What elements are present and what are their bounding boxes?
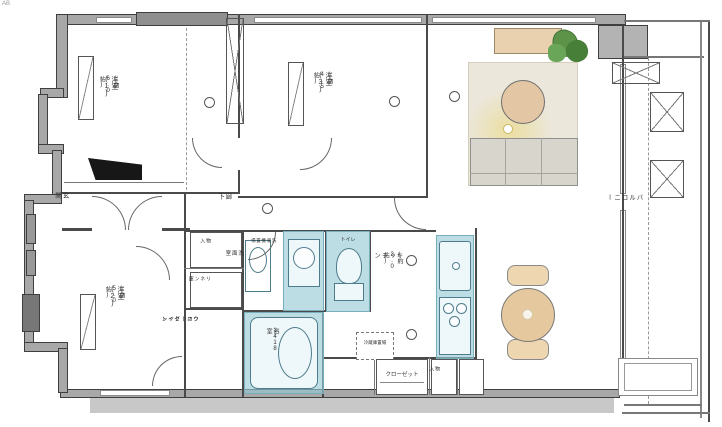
ac-unit-box-1: [650, 92, 684, 132]
wall-left-e: [58, 348, 68, 393]
balcony-bottom-line: [624, 404, 702, 406]
closet-bedroom1: [78, 56, 94, 120]
closet-between-bedrooms: [226, 18, 244, 124]
door-arc-entrance-left: [92, 196, 126, 230]
lamp-icon-ld: [449, 91, 460, 102]
burner-2: [456, 303, 467, 314]
closet-bedroom3: [288, 62, 304, 126]
door-arc-bedroom2: [136, 246, 170, 280]
corner-note: AB: [2, 1, 10, 7]
balcony-rail-2: [708, 22, 710, 422]
balcony-rail-1: [700, 22, 702, 418]
window-top-3: [432, 17, 596, 23]
wall-band-v1: [374, 357, 375, 395]
dining-table-center: [522, 309, 533, 320]
wall-bed1-bed3-lower: [238, 170, 240, 194]
sofa-seam-3: [470, 173, 578, 174]
burner-1: [443, 303, 454, 314]
bathtub-inner: [278, 327, 312, 379]
wall-bed1-bottom: [62, 192, 240, 194]
door-arc-wic: [152, 356, 182, 386]
balcony-rail-bottom: [622, 412, 710, 414]
floor-plan: AB: [0, 0, 722, 427]
wall-bed2-right: [184, 192, 186, 397]
faucet-icon: [452, 262, 460, 270]
balcony-top-line: [624, 56, 704, 58]
meter-box-3: [22, 294, 40, 332]
closet-hanger-pipe: [380, 382, 424, 383]
wall-band-v2: [429, 357, 430, 395]
wall-band-v3: [457, 357, 458, 395]
entrance-marker-triangle: [88, 158, 142, 180]
window-bedroom2-bottom: [100, 390, 170, 396]
entrance-step-line: [64, 182, 184, 183]
meter-box-2: [26, 250, 36, 276]
floor-lamp-dot: [503, 124, 513, 134]
wall-entrance-left: [62, 228, 92, 231]
window-top-1: [96, 17, 132, 23]
wall-wic-top: [184, 308, 244, 310]
balcony-rail-top: [624, 20, 710, 22]
bed1-beam-dashed: [186, 28, 187, 190]
lamp-icon-hall: [262, 203, 273, 214]
lamp-icon-kitchen-2: [406, 329, 417, 340]
wall-entrance-right: [162, 228, 190, 231]
exterior-band-bottom: [90, 398, 614, 413]
door-arc-living: [394, 198, 426, 230]
balcony-hatch-inner: [624, 363, 692, 391]
wall-bed3-ld: [426, 14, 428, 198]
closet-label: クローゼット: [378, 370, 426, 378]
dining-chair-bottom: [507, 339, 549, 360]
wall-left-a: [56, 14, 68, 98]
meter-box-1: [26, 214, 36, 244]
closet-bedroom2: [80, 294, 96, 350]
wall-kitchen-right: [475, 228, 477, 360]
balcony-bench-box: [612, 62, 660, 84]
window-top-2: [254, 17, 422, 23]
lamp-icon-bed3: [389, 96, 400, 107]
ac-unit-box-2: [650, 160, 684, 198]
coffee-table: [501, 80, 545, 124]
door-arc-bedroom3: [300, 138, 332, 170]
wall-storage-div: [184, 268, 244, 269]
lamp-icon-kitchen-1: [406, 255, 417, 266]
lamp-icon-bed1: [204, 97, 215, 108]
balcony-center-dashed: [648, 58, 649, 404]
storage-band-box: [431, 359, 457, 395]
fridge-space-box: [356, 332, 394, 360]
sofa-seam-2: [541, 138, 542, 186]
washing-machine-icon: [293, 247, 315, 269]
door-arc-entrance-right: [128, 196, 162, 230]
toilet-label: トイレ: [330, 236, 366, 243]
door-arc-washroom: [248, 232, 276, 260]
fridge-label: 冷蔵庫置場: [356, 340, 394, 346]
toilet-bowl-icon: [336, 248, 362, 284]
band-box-right: [459, 359, 484, 395]
dining-chair-top: [507, 265, 549, 286]
burner-3: [449, 316, 460, 327]
plant-icon-leaf3: [548, 44, 566, 62]
door-arc-bedroom1: [192, 138, 222, 168]
toilet-tank-icon: [334, 283, 364, 301]
sofa-seam-1: [505, 138, 506, 186]
sofa: [470, 138, 578, 186]
wall-top-dark: [136, 12, 228, 26]
